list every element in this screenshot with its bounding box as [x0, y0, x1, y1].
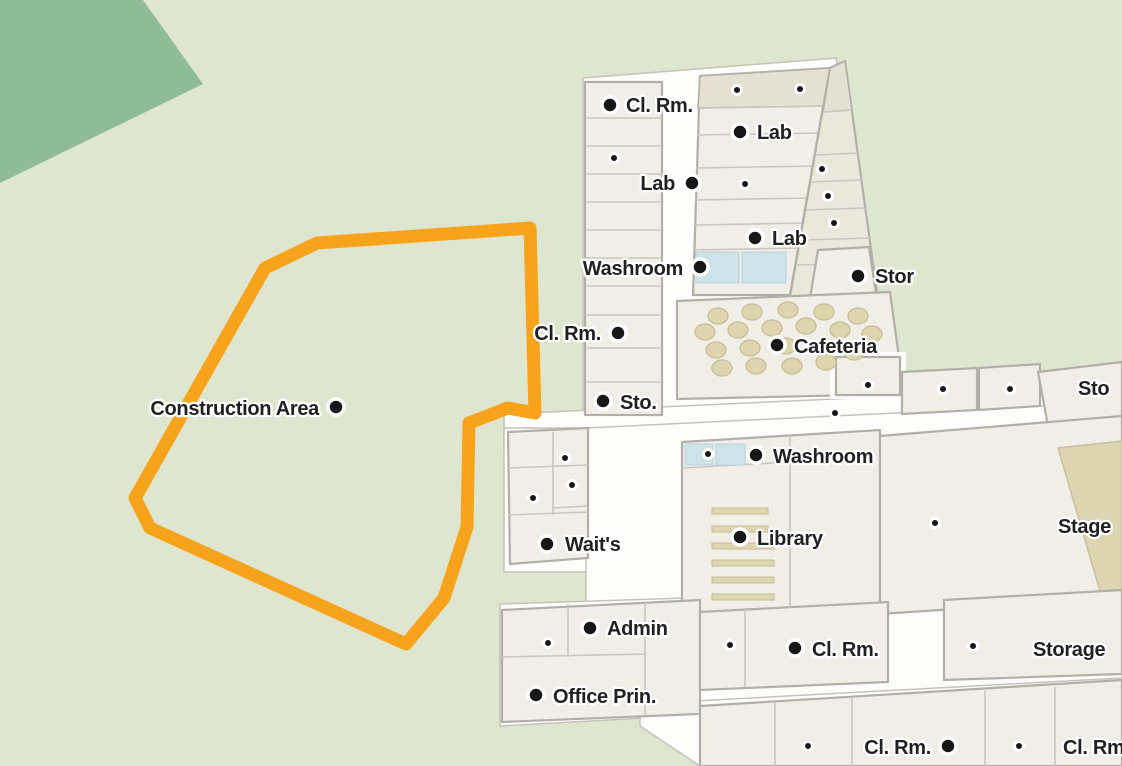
poi-dot[interactable] [864, 381, 873, 390]
poi-dot[interactable] [733, 86, 742, 95]
marker-cl-rm-2[interactable] [610, 325, 626, 341]
cafeteria-table [712, 360, 732, 376]
marker-library[interactable] [732, 529, 748, 545]
marker-washroom-1[interactable] [692, 259, 708, 275]
label-cl-rm-5[interactable]: Cl. Rm. [1063, 737, 1122, 759]
marker-cafeteria[interactable] [769, 337, 785, 353]
label-cl-rm-1[interactable]: Cl. Rm. [626, 95, 693, 117]
poi-dot[interactable] [610, 154, 619, 163]
label-storage[interactable]: Storage [1033, 639, 1106, 661]
poi-dot[interactable] [796, 85, 805, 94]
cafeteria-table [742, 304, 762, 320]
cafeteria-table [746, 358, 766, 374]
poi-dot[interactable] [939, 385, 948, 394]
cafeteria-table [728, 322, 748, 338]
marker-stor-1[interactable] [850, 268, 866, 284]
poi-dot[interactable] [1015, 742, 1024, 751]
poi-dot[interactable] [544, 639, 553, 648]
marker-lab-1[interactable] [732, 124, 748, 140]
cafeteria-table [814, 304, 834, 320]
indoor-map-view[interactable]: Cl. Rm.LabLabLabWashroomStorCl. Rm.Cafet… [0, 0, 1122, 766]
marker-waits[interactable] [539, 536, 555, 552]
label-cl-rm-3[interactable]: Cl. Rm. [812, 639, 879, 661]
map-canvas[interactable]: Cl. Rm.LabLabLabWashroomStorCl. Rm.Cafet… [0, 0, 1122, 766]
cafeteria-table [740, 340, 760, 356]
cafeteria-table [708, 308, 728, 324]
label-stor-1[interactable]: Stor [875, 266, 914, 288]
cafeteria-table [782, 358, 802, 374]
poi-dot[interactable] [818, 165, 827, 174]
marker-lab-3[interactable] [747, 230, 763, 246]
marker-cl-rm-4[interactable] [940, 738, 956, 754]
marker-office-prin[interactable] [528, 687, 544, 703]
label-stage[interactable]: Stage [1058, 516, 1111, 538]
marker-sto-1[interactable] [595, 393, 611, 409]
label-admin[interactable]: Admin [607, 618, 668, 640]
marker-cl-rm-1[interactable] [602, 97, 618, 113]
label-lab-3[interactable]: Lab [772, 228, 807, 250]
poi-dot[interactable] [561, 454, 570, 463]
label-office-prin[interactable]: Office Prin. [553, 686, 656, 708]
marker-lab-2[interactable] [684, 175, 700, 191]
poi-dot[interactable] [568, 481, 577, 490]
poi-dot[interactable] [704, 450, 713, 459]
label-sto-2[interactable]: Sto [1078, 378, 1109, 400]
poi-dot[interactable] [741, 180, 750, 189]
label-cafeteria[interactable]: Cafeteria [794, 336, 878, 358]
marker-construction-area[interactable] [328, 399, 344, 415]
cafeteria-table [762, 320, 782, 336]
washroom-tiles-upper [742, 252, 786, 283]
cafeteria-table [706, 342, 726, 358]
label-cl-rm-4[interactable]: Cl. Rm. [864, 737, 931, 759]
washroom-tiles-lower [716, 444, 745, 465]
marker-washroom-2[interactable] [748, 447, 764, 463]
poi-dot[interactable] [831, 409, 840, 418]
poi-dot[interactable] [969, 642, 978, 651]
label-library[interactable]: Library [757, 528, 824, 550]
poi-dot[interactable] [824, 192, 833, 201]
poi-dot[interactable] [804, 742, 813, 751]
label-construction-area[interactable]: Construction Area [150, 398, 320, 420]
label-washroom-2[interactable]: Washroom [773, 446, 873, 468]
label-waits[interactable]: Wait's [565, 534, 621, 556]
cafeteria-table [848, 308, 868, 324]
label-sto-1[interactable]: Sto. [620, 392, 657, 414]
cafeteria-table [796, 318, 816, 334]
poi-dot[interactable] [726, 641, 735, 650]
marker-admin[interactable] [582, 620, 598, 636]
label-washroom-1[interactable]: Washroom [583, 258, 683, 280]
poi-dot[interactable] [830, 219, 839, 228]
room-block-left-column [585, 82, 662, 415]
marker-cl-rm-3[interactable] [787, 640, 803, 656]
cafeteria-table [695, 324, 715, 340]
poi-dot[interactable] [529, 494, 538, 503]
label-lab-1[interactable]: Lab [757, 122, 792, 144]
cafeteria-table [778, 302, 798, 318]
label-cl-rm-2[interactable]: Cl. Rm. [534, 323, 601, 345]
poi-dot[interactable] [931, 519, 940, 528]
poi-dot[interactable] [1006, 385, 1015, 394]
label-lab-2[interactable]: Lab [640, 173, 675, 195]
room-block-storage [944, 590, 1122, 680]
